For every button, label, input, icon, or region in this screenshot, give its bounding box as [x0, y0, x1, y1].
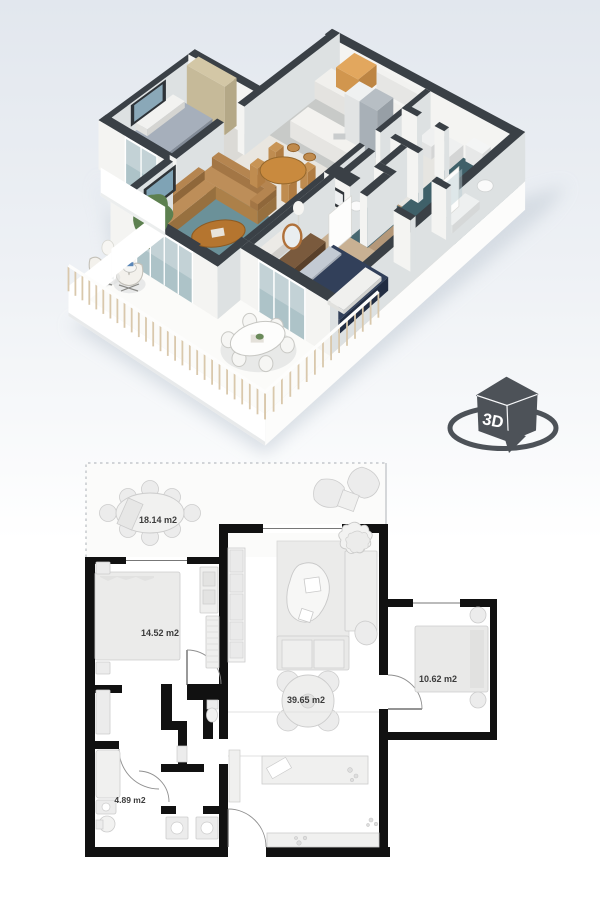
svg-text:39.65 m2: 39.65 m2	[287, 695, 325, 705]
svg-text:14.52 m2: 14.52 m2	[141, 628, 179, 638]
svg-text:10.62 m2: 10.62 m2	[419, 674, 457, 684]
svg-text:4.89 m2: 4.89 m2	[114, 795, 145, 805]
svg-text:18.14 m2: 18.14 m2	[139, 515, 177, 525]
